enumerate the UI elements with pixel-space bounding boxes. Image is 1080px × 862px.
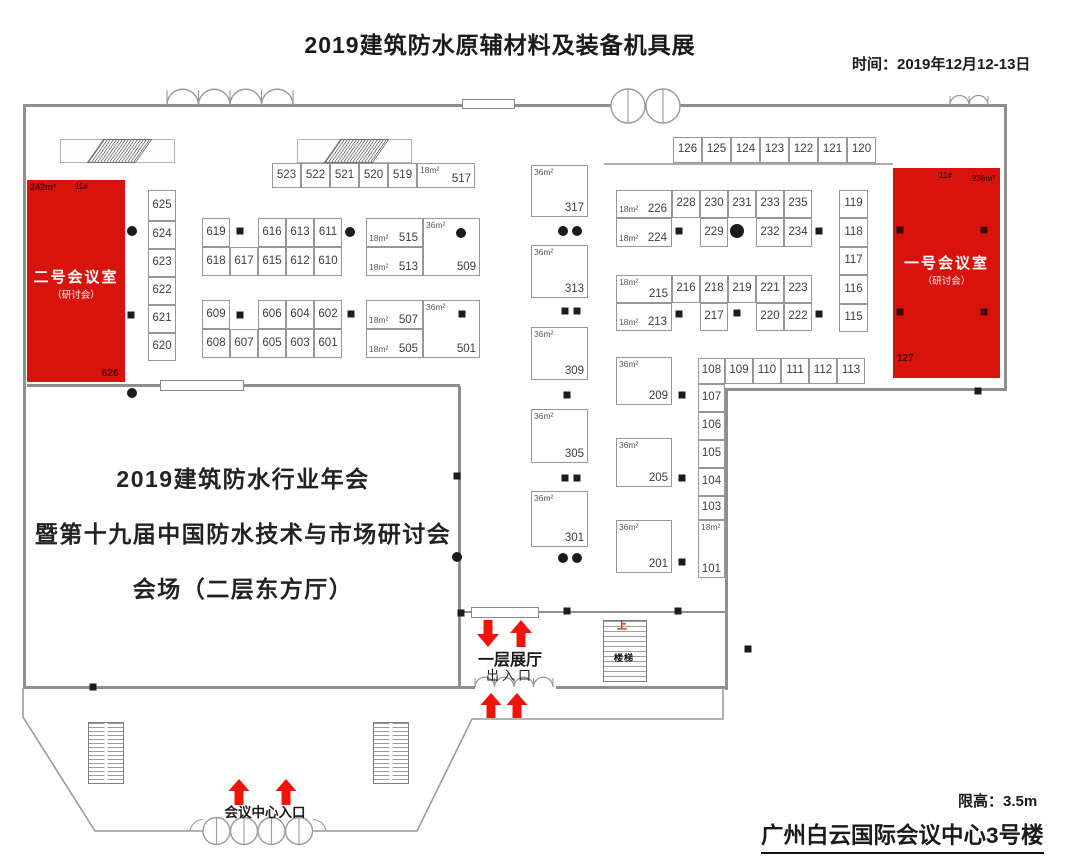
booth-number: 230 <box>704 198 723 210</box>
booth-217: 217 <box>700 303 728 331</box>
pillar-square <box>676 311 683 318</box>
booth-number: 624 <box>152 229 171 241</box>
booth-number: 612 <box>290 256 309 268</box>
room1-subtitle: （研讨会） <box>893 273 1000 287</box>
pillar-circle <box>127 226 137 236</box>
booth-213: 18m²213 <box>616 303 672 331</box>
booth-317: 36m²317 <box>531 165 588 217</box>
booth-number: 226 <box>648 204 667 216</box>
booth-619: 619 <box>202 218 230 247</box>
booth-number: 607 <box>234 338 253 350</box>
escalator-divider <box>390 723 393 783</box>
booth-507: 18m²507 <box>366 300 423 329</box>
meeting-line-1: 2019建筑防水行业年会 <box>23 460 463 494</box>
booth-number: 617 <box>234 256 253 268</box>
booth-number: 209 <box>649 391 668 403</box>
booth-222: 222 <box>784 303 812 331</box>
meeting-line-3: 会场（二层东方厅） <box>23 570 463 604</box>
booth-309: 36m²309 <box>531 327 588 380</box>
booth-number: 115 <box>844 312 862 324</box>
booth-number: 104 <box>702 476 721 488</box>
booth-615: 615 <box>258 247 286 276</box>
booth-301: 36m²301 <box>531 491 588 547</box>
booth-621: 621 <box>148 305 176 333</box>
booth-number: 218 <box>704 283 723 295</box>
booth-number: 216 <box>676 283 695 295</box>
booth-515: 18m²515 <box>366 218 423 247</box>
door-frame-top <box>462 99 515 109</box>
booth-number: 619 <box>206 227 225 239</box>
booth-area-label: 36m² <box>426 220 445 230</box>
booth-620: 620 <box>148 333 176 361</box>
direction-arrows <box>229 620 640 805</box>
escalator-icon <box>88 722 124 784</box>
escalator-icon <box>60 139 175 163</box>
booth-number: 601 <box>318 338 337 350</box>
booth-number: 604 <box>290 309 309 321</box>
door-hinges-top-right <box>950 96 988 105</box>
pillar-square <box>975 388 982 395</box>
booth-121: 121 <box>818 137 847 163</box>
booth-number: 215 <box>649 289 668 301</box>
pillar-square <box>459 311 466 318</box>
booth-number: 116 <box>844 284 862 296</box>
room1-area-label: 236m² <box>972 174 995 183</box>
pillar-square <box>679 392 686 399</box>
booth-205: 36m²205 <box>616 438 672 487</box>
booth-number: 118 <box>844 227 862 239</box>
room2-area-label: 242m² <box>30 182 56 192</box>
pillar-square <box>816 311 823 318</box>
booth-number: 233 <box>760 198 779 210</box>
booth-area-label: 18m² <box>369 262 388 273</box>
booth-519: 519 <box>388 163 417 188</box>
booth-number: 103 <box>702 502 721 514</box>
booth-number: 608 <box>206 338 225 350</box>
booth-number: 519 <box>393 170 412 182</box>
booth-number: 221 <box>760 283 779 295</box>
booth-number: 622 <box>152 285 171 297</box>
stairs-up-label: 上 <box>617 617 627 632</box>
booth-number: 222 <box>788 311 807 323</box>
pillar-square <box>348 311 355 318</box>
pillar-square <box>816 228 823 235</box>
booth-123: 123 <box>760 137 789 163</box>
booth-235: 235 <box>784 190 812 218</box>
booth-number: 602 <box>318 309 337 321</box>
booth-231: 231 <box>728 190 756 218</box>
booth-area-label: 36m² <box>619 440 638 450</box>
booth-number: 201 <box>649 559 668 571</box>
booth-number: 609 <box>206 309 225 321</box>
pillar-circle <box>127 388 137 398</box>
booth-517: 18m²517 <box>417 163 475 188</box>
booth-number: 625 <box>152 200 171 212</box>
pillar-circle <box>558 553 568 563</box>
escalator-icon <box>297 139 412 163</box>
booth-number: 119 <box>844 198 862 210</box>
pillar-circle <box>572 553 582 563</box>
booth-209: 36m²209 <box>616 357 672 405</box>
booth-number: 229 <box>704 227 723 239</box>
booth-number: 109 <box>729 365 748 377</box>
booth-601: 601 <box>314 329 342 358</box>
booth-234: 234 <box>784 218 812 247</box>
booth-109: 109 <box>725 358 753 384</box>
booth-number: 523 <box>277 170 296 182</box>
booth-number: 231 <box>732 198 751 210</box>
booth-119: 119 <box>839 190 868 218</box>
booth-604: 604 <box>286 300 314 329</box>
booth-219: 219 <box>728 275 756 303</box>
escalator-icon <box>373 722 409 784</box>
booth-610: 610 <box>314 247 342 276</box>
event-time-label: 时间：2019年12月12-13日 <box>852 53 1030 74</box>
booth-number: 618 <box>206 256 225 268</box>
booth-number: 125 <box>707 144 726 156</box>
conference-room-2: 242m² 11# 二号会议室 （研讨会） 626 <box>27 180 125 382</box>
booth-number: 615 <box>262 256 281 268</box>
booth-number: 313 <box>565 284 584 296</box>
booth-617: 617 <box>230 247 258 276</box>
booth-number: 603 <box>290 338 309 350</box>
booth-608: 608 <box>202 329 230 358</box>
pillar-square <box>745 646 752 653</box>
booth-616: 616 <box>258 218 286 247</box>
booth-number: 110 <box>758 365 776 377</box>
arrow-down-exit <box>477 620 499 647</box>
booth-area-label: 18m² <box>619 317 638 328</box>
pillar-square <box>574 475 581 482</box>
booth-number: 220 <box>760 311 779 323</box>
booth-513: 18m²513 <box>366 247 423 276</box>
booth-number: 505 <box>399 344 418 356</box>
pillar-square <box>574 308 581 315</box>
booth-number: 120 <box>852 144 871 156</box>
booth-number: 501 <box>457 344 476 356</box>
booth-505: 18m²505 <box>366 329 423 358</box>
booth-area-label: 36m² <box>619 359 638 369</box>
booth-625: 625 <box>148 190 176 221</box>
arrow-up-lobby-2 <box>507 693 528 718</box>
booth-area-label: 36m² <box>534 167 553 177</box>
pillar-square <box>564 392 571 399</box>
booth-216: 216 <box>672 275 700 303</box>
booth-228: 228 <box>672 190 700 218</box>
booth-area-label: 36m² <box>534 411 553 421</box>
booth-number: 621 <box>152 313 171 325</box>
booth-number: 106 <box>702 420 721 432</box>
booth-223: 223 <box>784 275 812 303</box>
booth-number: 509 <box>457 262 476 274</box>
booth-116: 116 <box>839 275 868 304</box>
booth-number: 616 <box>262 227 281 239</box>
booth-number: 513 <box>399 262 418 274</box>
booth-area-label: 18m² <box>420 165 439 175</box>
booth-number: 610 <box>318 256 337 268</box>
booth-area-label: 36m² <box>534 329 553 339</box>
page-title: 2019建筑防水原辅材料及装备机具展 <box>210 26 790 60</box>
room1-booth-number: 127 <box>897 353 914 364</box>
booth-520: 520 <box>359 163 388 188</box>
height-limit-label: 限高：3.5m <box>958 790 1037 811</box>
booth-618: 618 <box>202 247 230 276</box>
room1-lot-label: 11# <box>939 171 952 180</box>
booth-602: 602 <box>314 300 342 329</box>
booth-number: 219 <box>732 283 751 295</box>
center-entrance-label: 会议中心入口 <box>210 801 320 821</box>
booth-number: 301 <box>565 533 584 545</box>
booth-number: 305 <box>565 449 584 461</box>
booth-number: 107 <box>702 392 721 404</box>
booth-624: 624 <box>148 221 176 249</box>
booth-110: 110 <box>753 358 781 384</box>
booth-number: 111 <box>786 365 803 377</box>
booth-215: 18m²215 <box>616 275 672 303</box>
booth-112: 112 <box>809 358 837 384</box>
booth-number: 223 <box>788 283 807 295</box>
conference-room-1: 11# 236m² 一号会议室 （研讨会） 127 <box>893 168 1000 378</box>
booth-126: 126 <box>673 137 702 163</box>
booth-number: 213 <box>648 317 667 329</box>
booth-number: 620 <box>152 341 171 353</box>
pillar-circle <box>558 226 568 236</box>
booth-120: 120 <box>847 137 876 163</box>
booth-605: 605 <box>258 329 286 358</box>
booth-number: 117 <box>844 255 862 267</box>
pillar-square <box>237 228 244 235</box>
booth-number: 123 <box>765 144 784 156</box>
booth-number: 105 <box>702 448 721 460</box>
arrow-up-lobby-1 <box>481 693 502 718</box>
booth-313: 36m²313 <box>531 245 588 298</box>
booth-218: 218 <box>700 275 728 303</box>
pillar-square <box>128 312 135 319</box>
room2-booth-number: 626 <box>101 367 119 379</box>
booth-area-label: 18m² <box>369 344 388 355</box>
pillar-square <box>562 308 569 315</box>
booth-number: 232 <box>760 227 779 239</box>
pillar-circle <box>572 226 582 236</box>
booth-number: 108 <box>702 365 721 377</box>
booth-509: 36m²509 <box>423 218 480 276</box>
booth-104: 104 <box>698 468 725 496</box>
building-name-label: 广州白云国际会议中心3号楼 <box>761 818 1044 854</box>
booth-area-label: 18m² <box>619 204 638 215</box>
booth-230: 230 <box>700 190 728 218</box>
booth-number: 605 <box>262 338 281 350</box>
booth-number: 623 <box>152 257 171 269</box>
meeting-line-2: 暨第十九届中国防水技术与市场研讨会 <box>23 515 463 549</box>
booth-number: 228 <box>676 198 695 210</box>
booth-area-label: 36m² <box>619 522 638 532</box>
booth-number: 101 <box>702 564 721 576</box>
arrow-up-exit <box>510 620 532 647</box>
booth-number: 317 <box>565 203 584 215</box>
booth-area-label: 36m² <box>534 247 553 257</box>
door-frame-corridor <box>471 607 539 618</box>
booth-113: 113 <box>837 358 865 384</box>
booth-area-label: 18m² <box>619 233 638 244</box>
booth-number: 521 <box>335 170 354 182</box>
booth-number: 234 <box>788 227 807 239</box>
room1-name: 一号会议室 <box>893 252 1000 273</box>
exit-label: 出入口 <box>462 665 558 684</box>
pillar-square <box>981 309 988 316</box>
booth-103: 103 <box>698 496 725 520</box>
pillar-square <box>676 228 683 235</box>
booth-607: 607 <box>230 329 258 358</box>
booth-number: 112 <box>814 365 832 377</box>
booth-area-label: 18m² <box>701 522 720 532</box>
booth-number: 122 <box>794 144 813 156</box>
stairs-label: 楼梯 <box>603 651 645 664</box>
booth-area-label: 36m² <box>426 302 445 312</box>
pillar-square <box>981 227 988 234</box>
pillar-square <box>675 608 682 615</box>
booth-622: 622 <box>148 277 176 305</box>
escalator-hatch <box>86 139 152 163</box>
pillar-square <box>564 608 571 615</box>
pillar-circle <box>456 228 466 238</box>
booth-611: 611 <box>314 218 342 247</box>
booth-229: 229 <box>700 218 728 247</box>
booth-number: 217 <box>704 311 723 323</box>
room2-lot-label: 11# <box>75 182 88 191</box>
booth-number: 113 <box>842 365 860 377</box>
booth-125: 125 <box>702 137 731 163</box>
booth-522: 522 <box>301 163 330 188</box>
booth-area-label: 18m² <box>619 277 638 287</box>
booth-224: 18m²224 <box>616 218 672 247</box>
room2-subtitle: （研讨会） <box>27 287 125 301</box>
pillar-square <box>562 475 569 482</box>
booth-101: 18m²101 <box>698 520 725 578</box>
booth-521: 521 <box>330 163 359 188</box>
booth-number: 611 <box>319 227 337 239</box>
booth-613: 613 <box>286 218 314 247</box>
booth-221: 221 <box>756 275 784 303</box>
booth-115: 115 <box>839 304 868 332</box>
booth-108: 108 <box>698 358 725 384</box>
pillar-square <box>679 559 686 566</box>
door-hinges-top-left <box>167 90 293 105</box>
pillar-square <box>679 475 686 482</box>
meeting-hall-text: 2019建筑防水行业年会 暨第十九届中国防水技术与市场研讨会 会场（二层东方厅） <box>23 460 463 625</box>
room2-name: 二号会议室 <box>27 266 125 287</box>
booth-number: 224 <box>648 233 667 245</box>
booth-number: 121 <box>823 144 842 156</box>
booth-number: 309 <box>565 366 584 378</box>
escalator-hatch <box>323 139 389 163</box>
booth-107: 107 <box>698 384 725 412</box>
booth-area-label: 18m² <box>369 233 388 244</box>
pillar-square <box>734 310 741 317</box>
booth-number: 205 <box>649 473 668 485</box>
booth-106: 106 <box>698 412 725 440</box>
booth-number: 520 <box>364 170 383 182</box>
booth-105: 105 <box>698 440 725 468</box>
pillar-square <box>897 227 904 234</box>
pillar-square <box>897 309 904 316</box>
booth-number: 606 <box>262 309 281 321</box>
booth-233: 233 <box>756 190 784 218</box>
booth-number: 126 <box>678 144 697 156</box>
booth-number: 517 <box>452 174 471 186</box>
floor-plan: 2019建筑防水原辅材料及装备机具展 时间：2019年12月12-13日 <box>0 0 1080 862</box>
booth-623: 623 <box>148 249 176 277</box>
pillar-square <box>90 684 97 691</box>
booth-606: 606 <box>258 300 286 329</box>
booth-number: 507 <box>399 315 418 327</box>
booth-124: 124 <box>731 137 760 163</box>
booth-603: 603 <box>286 329 314 358</box>
booth-117: 117 <box>839 247 868 275</box>
booth-area-label: 36m² <box>534 493 553 503</box>
booth-523: 523 <box>272 163 301 188</box>
booth-226: 18m²226 <box>616 190 672 218</box>
booth-609: 609 <box>202 300 230 329</box>
booth-232: 232 <box>756 218 784 247</box>
booth-number: 124 <box>736 144 755 156</box>
booth-122: 122 <box>789 137 818 163</box>
booth-118: 118 <box>839 218 868 247</box>
booth-220: 220 <box>756 303 784 331</box>
door-frame-hall <box>160 380 244 391</box>
pillar-circle <box>730 224 744 238</box>
booth-501: 36m²501 <box>423 300 480 358</box>
booth-number: 613 <box>290 227 309 239</box>
pillar-circle <box>345 227 355 237</box>
booth-number: 515 <box>399 233 418 245</box>
booth-111: 111 <box>781 358 809 384</box>
escalator-divider <box>105 723 108 783</box>
booth-612: 612 <box>286 247 314 276</box>
booth-305: 36m²305 <box>531 409 588 463</box>
booth-area-label: 18m² <box>369 315 388 326</box>
booth-number: 522 <box>306 170 325 182</box>
pillar-square <box>237 312 244 319</box>
booth-201: 36m²201 <box>616 520 672 573</box>
booth-number: 235 <box>788 198 807 210</box>
